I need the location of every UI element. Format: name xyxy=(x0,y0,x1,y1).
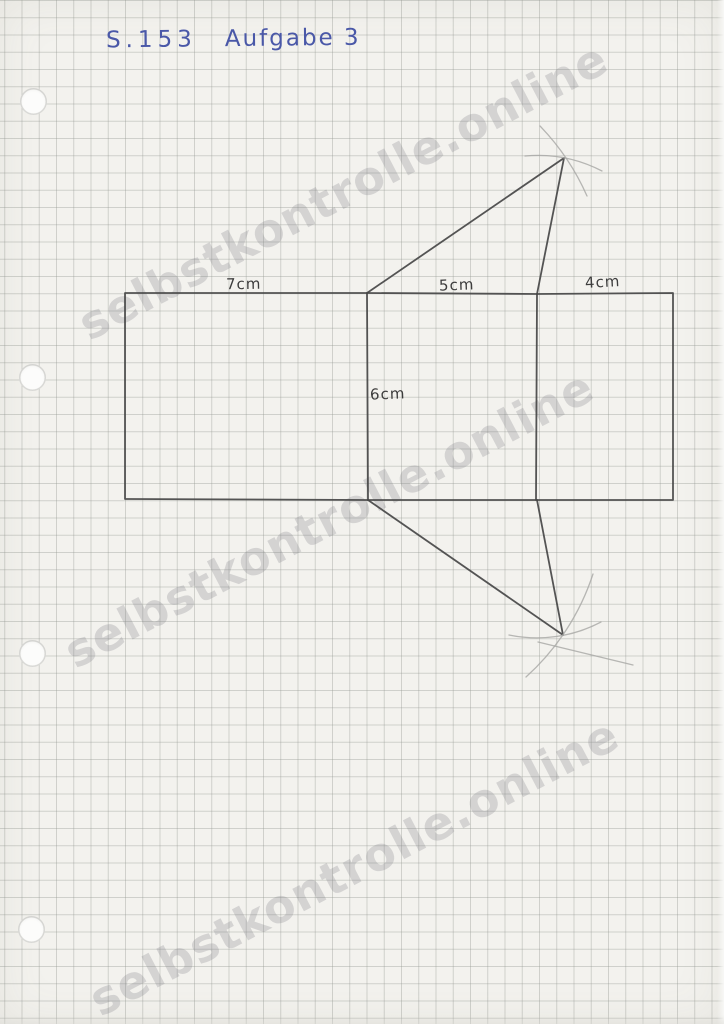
prism-net-drawing xyxy=(0,0,724,1024)
dimension-label-height: 6cm xyxy=(370,384,406,403)
stray-pencil-stroke xyxy=(538,642,633,665)
compass-arc-bottom-outer xyxy=(526,574,593,677)
dimension-label-left-width: 7cm xyxy=(226,275,262,294)
net-triangle-bottom xyxy=(368,500,563,635)
notebook-page: selbstkontrolle.online selbstkontrolle.o… xyxy=(0,0,724,1024)
net-divider-right xyxy=(536,294,537,500)
dimension-label-right-width: 4cm xyxy=(585,272,621,292)
net-triangle-top xyxy=(367,158,564,294)
dimension-label-middle-width: 5cm xyxy=(439,275,475,294)
net-divider-left xyxy=(367,293,368,500)
